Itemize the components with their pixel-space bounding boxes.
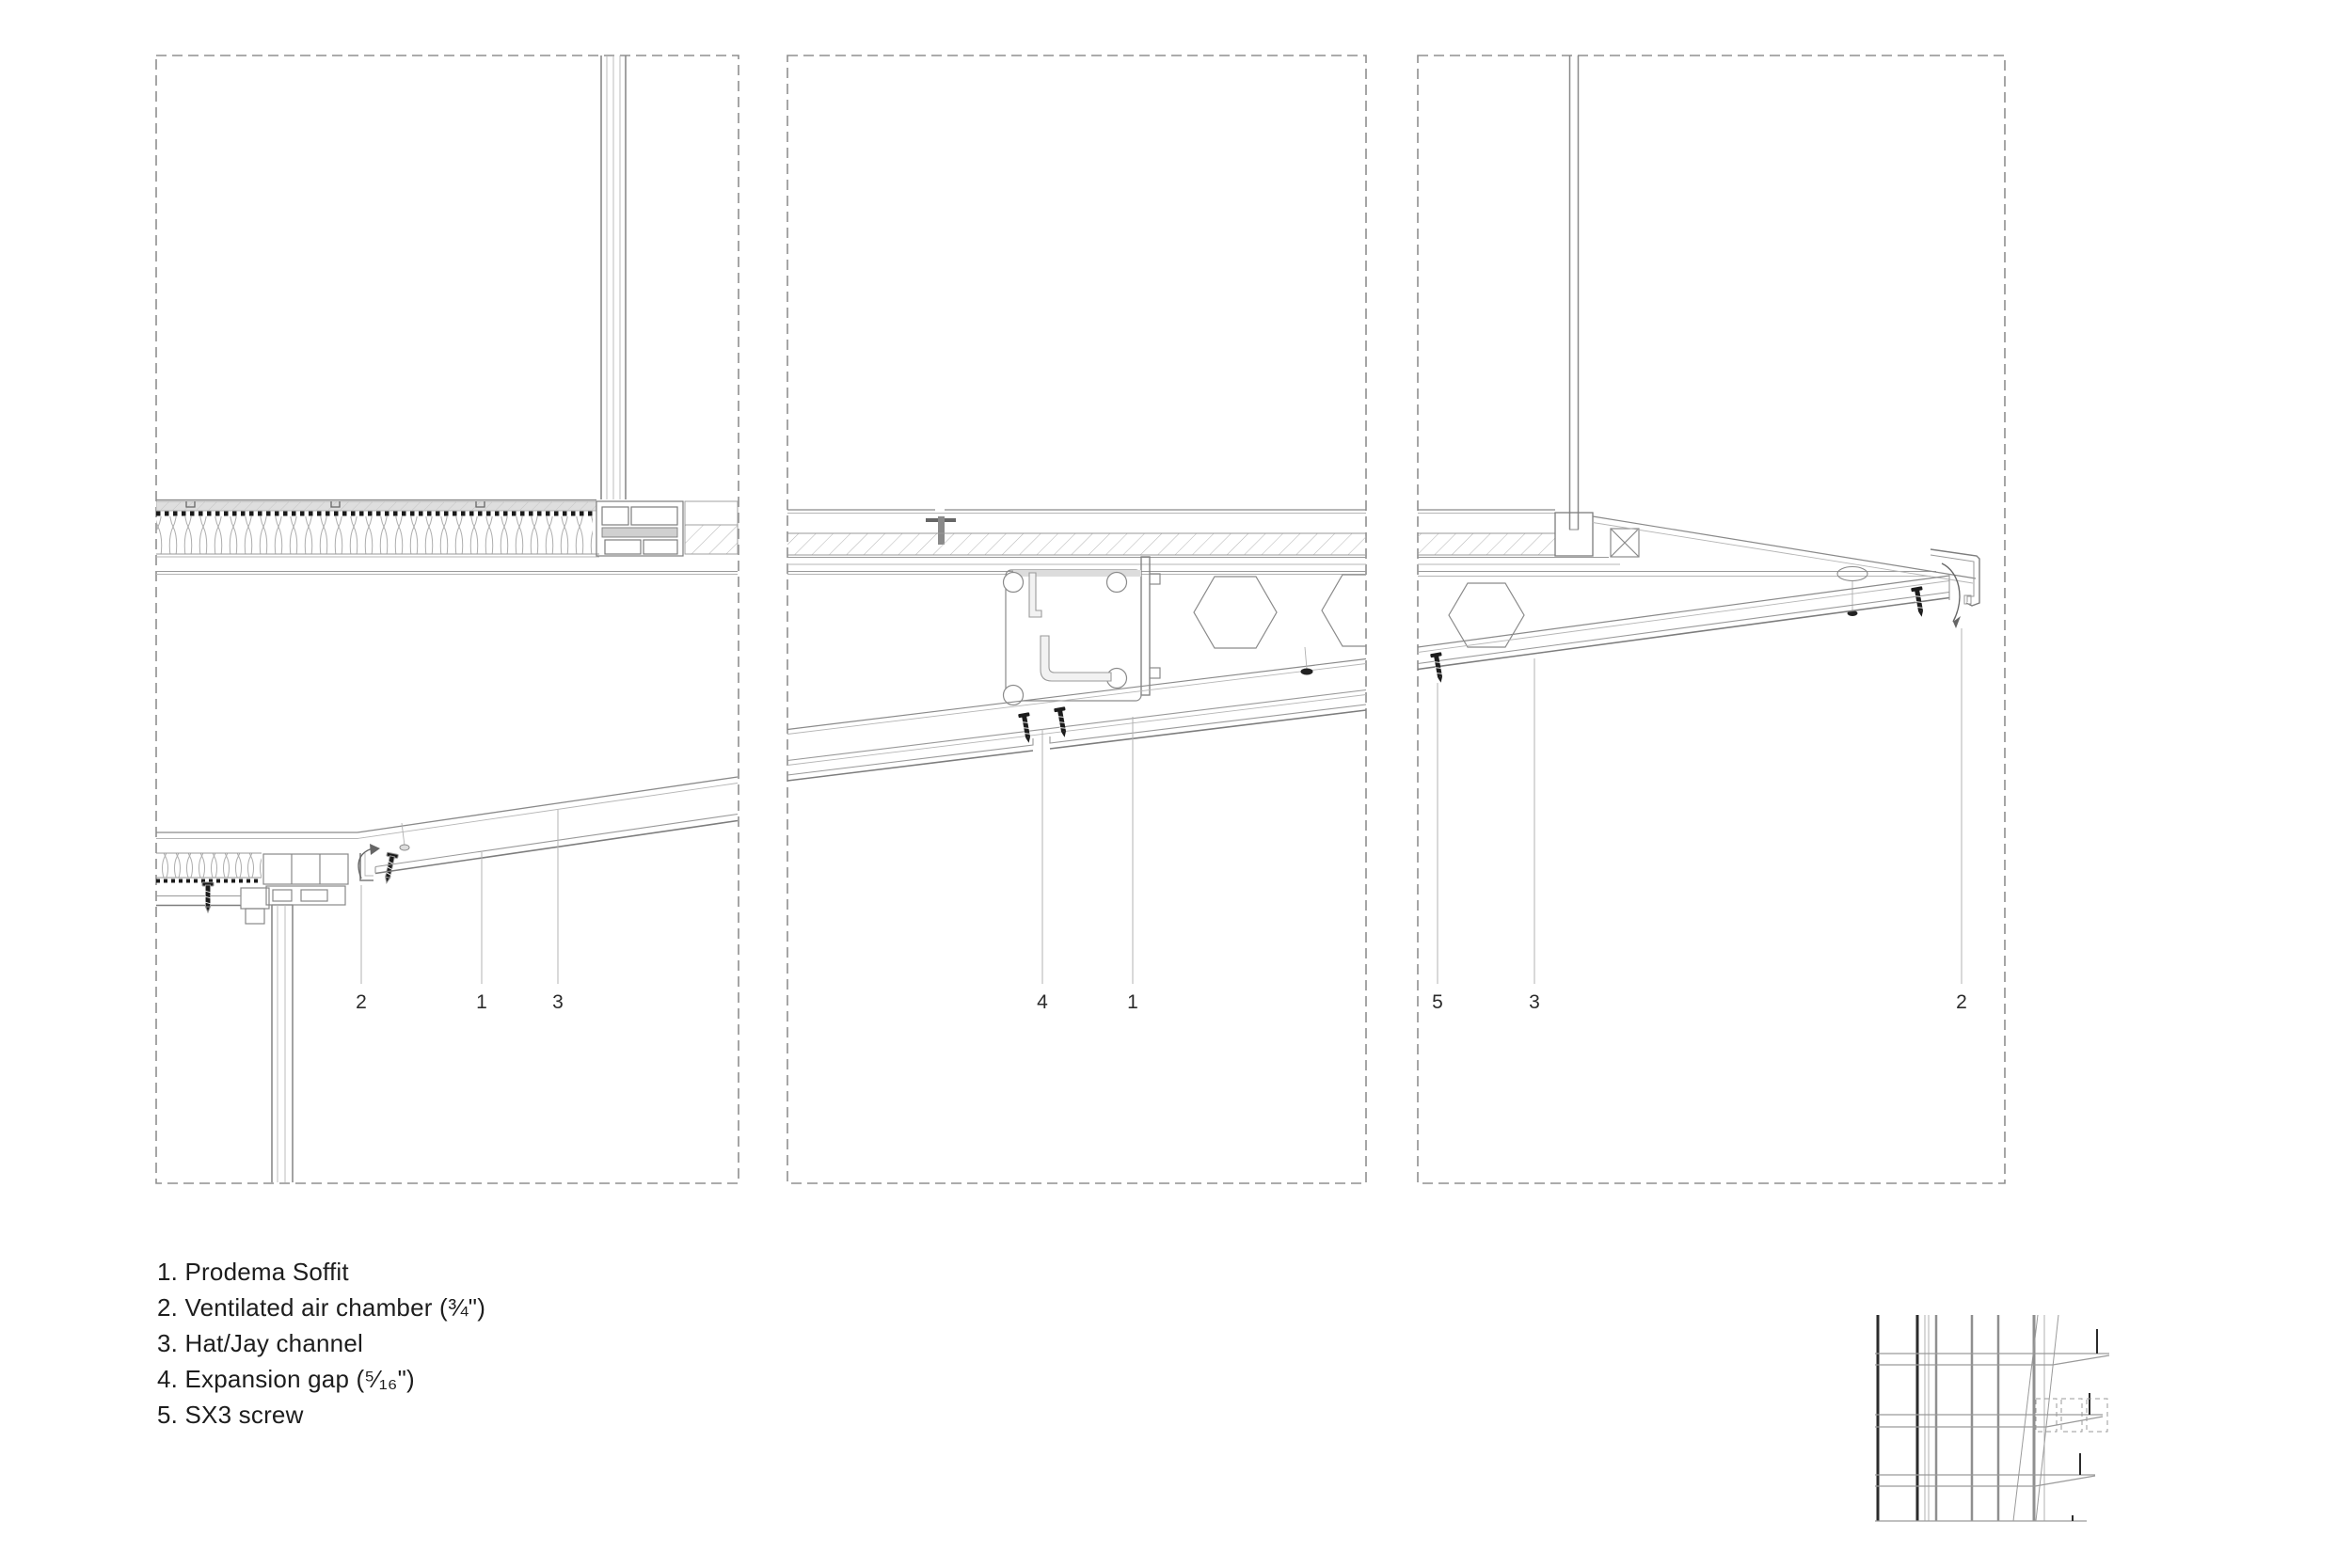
key-plan-floors [1875,1329,2109,1521]
soffit-assembly [787,647,1366,781]
legend-item-5: 5. SX3 screw [157,1397,485,1433]
concrete-deck-hatch [787,533,1366,555]
detail-panel-1: 2 1 3 [156,55,739,1183]
bolt-circle [1107,573,1127,593]
callout-number: 4 [1037,991,1048,1013]
legend: 1. Prodema Soffit 2. Ventilated air cham… [157,1254,485,1433]
callout-number: 2 [1956,991,1967,1013]
hex-web-opening [1322,575,1405,646]
hanger-rod [1569,55,1579,530]
panel-1-border [156,55,739,1183]
detail-panel-2: 4 1 [787,55,1405,1183]
window-mullion [601,55,626,499]
floor-assembly [156,500,738,575]
callout-number: 5 [1432,991,1443,1013]
jay-channel-profile [1029,573,1041,617]
screw-icon [1054,706,1070,738]
hanger-block [1555,513,1593,556]
callout-number: 3 [1529,991,1540,1013]
bolt [1150,668,1160,678]
sloped-soffit-board [375,815,738,874]
leader-lines [1438,628,1962,984]
soffit-assembly [1418,574,1949,670]
hat-channel-line [1418,593,1949,664]
bolt-washer [1837,567,1867,581]
screw-icon [1018,712,1034,744]
insulation-batt [156,516,593,554]
legend-item-1: 1. Prodema Soffit [157,1254,485,1290]
x-brace-box [1611,529,1639,557]
sill-insulation-batt [156,853,262,878]
left-soffit-board [156,896,241,906]
bolt-circle [1004,573,1024,593]
top-chord [1593,516,1976,578]
lower-window [272,905,293,1182]
panel-2-border [787,55,1366,1183]
panel-3-border [1418,55,2005,1183]
hanger-plate [1141,557,1150,695]
bolt [1150,574,1160,584]
hex-web-opening [1194,577,1277,648]
key-plan [1875,1315,2109,1521]
mullion-head-frame [596,501,683,556]
fastener-head [400,845,409,850]
detail-panel-3: 5 3 2 [1418,55,2005,1183]
legend-item-4: 4. Expansion gap (⁵⁄₁₆") [157,1361,485,1397]
leader-lines [361,810,558,984]
leader-lines [1042,717,1133,984]
truss-and-bracket [1004,557,1406,705]
legend-item-2: 2. Ventilated air chamber (¾") [157,1290,485,1325]
vent-gap-bracket [360,853,373,880]
jay-channel-profile [1041,636,1111,681]
drawing-sheet: 2 1 3 [0,0,2352,1568]
ceiling-soffit-assembly [156,777,738,1182]
screw-icon [202,882,214,912]
soffit-board-line [1418,598,1949,670]
fastener-head [1301,669,1313,675]
roof-deck [787,510,1366,575]
callout-number: 1 [476,991,487,1013]
callout-number: 3 [552,991,564,1013]
callout-number: 2 [356,991,367,1013]
soffit-board-with-expansion-gap [787,705,1366,781]
adjacent-slab-hatch [685,501,738,554]
legend-item-3: 3. Hat/Jay channel [157,1325,485,1361]
concrete-deck-hatch [1418,533,1555,555]
callout-number: 1 [1127,991,1138,1013]
screw-icon [381,852,398,884]
key-plan-mullions [1878,1315,2044,1521]
